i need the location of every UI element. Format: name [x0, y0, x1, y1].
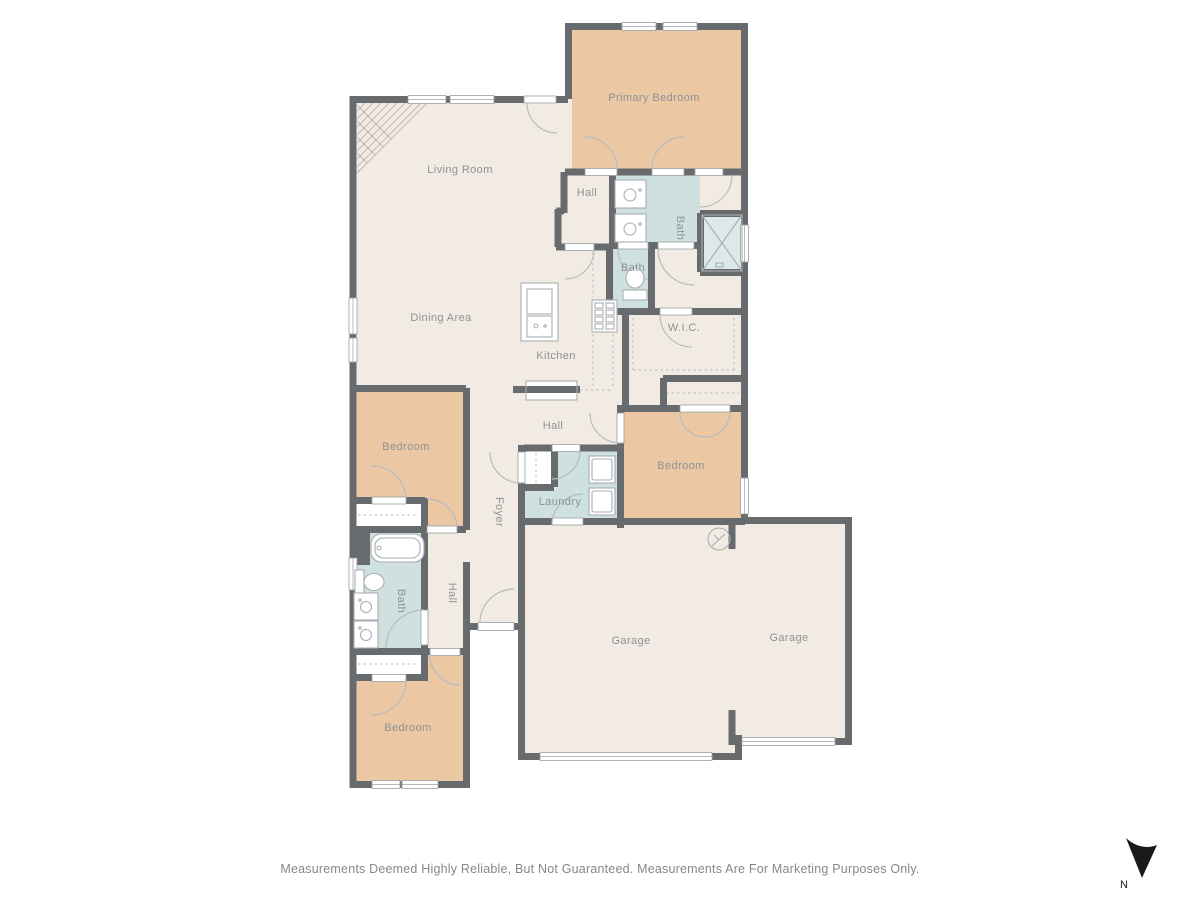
floorplan-page: Primary Bedroom Living Room Hall Bath Ba…: [0, 0, 1200, 900]
sink-icon: [354, 621, 378, 648]
stove-icon: [592, 300, 617, 332]
label-bedroom-bottom: Bedroom: [384, 722, 431, 734]
window: [450, 96, 494, 104]
sink-icon: [354, 593, 378, 620]
label-laundry: Laundry: [539, 496, 582, 508]
label-primary-bedroom: Primary Bedroom: [608, 92, 700, 104]
floorplan-canvas: Primary Bedroom Living Room Hall Bath Ba…: [0, 0, 1200, 900]
label-bedroom-middle-right: Bedroom: [657, 460, 704, 472]
sink-icon: [615, 214, 646, 242]
garage-door: [742, 738, 835, 746]
window: [372, 781, 400, 789]
label-wic: W.I.C.: [668, 322, 700, 334]
window: [663, 23, 697, 31]
closet-bedroom-bottom: [356, 655, 422, 675]
label-foyer: Foyer: [493, 497, 505, 527]
label-dining-area: Dining Area: [410, 312, 472, 324]
label-hall-left: Hall: [446, 583, 458, 604]
label-garage-right: Garage: [769, 632, 808, 644]
disclaimer-text: Measurements Deemed Highly Reliable, But…: [0, 862, 1200, 876]
label-garage-left: Garage: [611, 635, 650, 647]
window: [741, 478, 749, 514]
dryer-icon: [589, 488, 615, 515]
window: [349, 298, 357, 334]
label-bedroom-middle-left: Bedroom: [382, 441, 429, 453]
kitchen-island-icon: [521, 283, 558, 341]
north-label: N: [1120, 879, 1128, 891]
washer-icon: [589, 456, 615, 483]
label-bath-primary: Bath: [674, 216, 686, 240]
label-hall-top: Hall: [577, 187, 598, 199]
label-hall-middle: Hall: [543, 420, 564, 432]
window: [408, 96, 446, 104]
label-living-room: Living Room: [427, 164, 493, 176]
window: [349, 338, 357, 362]
sink-icon: [615, 180, 646, 208]
label-bath-toilet: Bath: [621, 262, 645, 274]
garage-door: [540, 753, 712, 761]
label-bath-left: Bath: [395, 589, 407, 613]
closet-coat: [524, 451, 552, 485]
label-kitchen: Kitchen: [536, 350, 576, 362]
window: [622, 23, 656, 31]
bathtub-icon: [371, 534, 424, 562]
window: [402, 781, 438, 789]
